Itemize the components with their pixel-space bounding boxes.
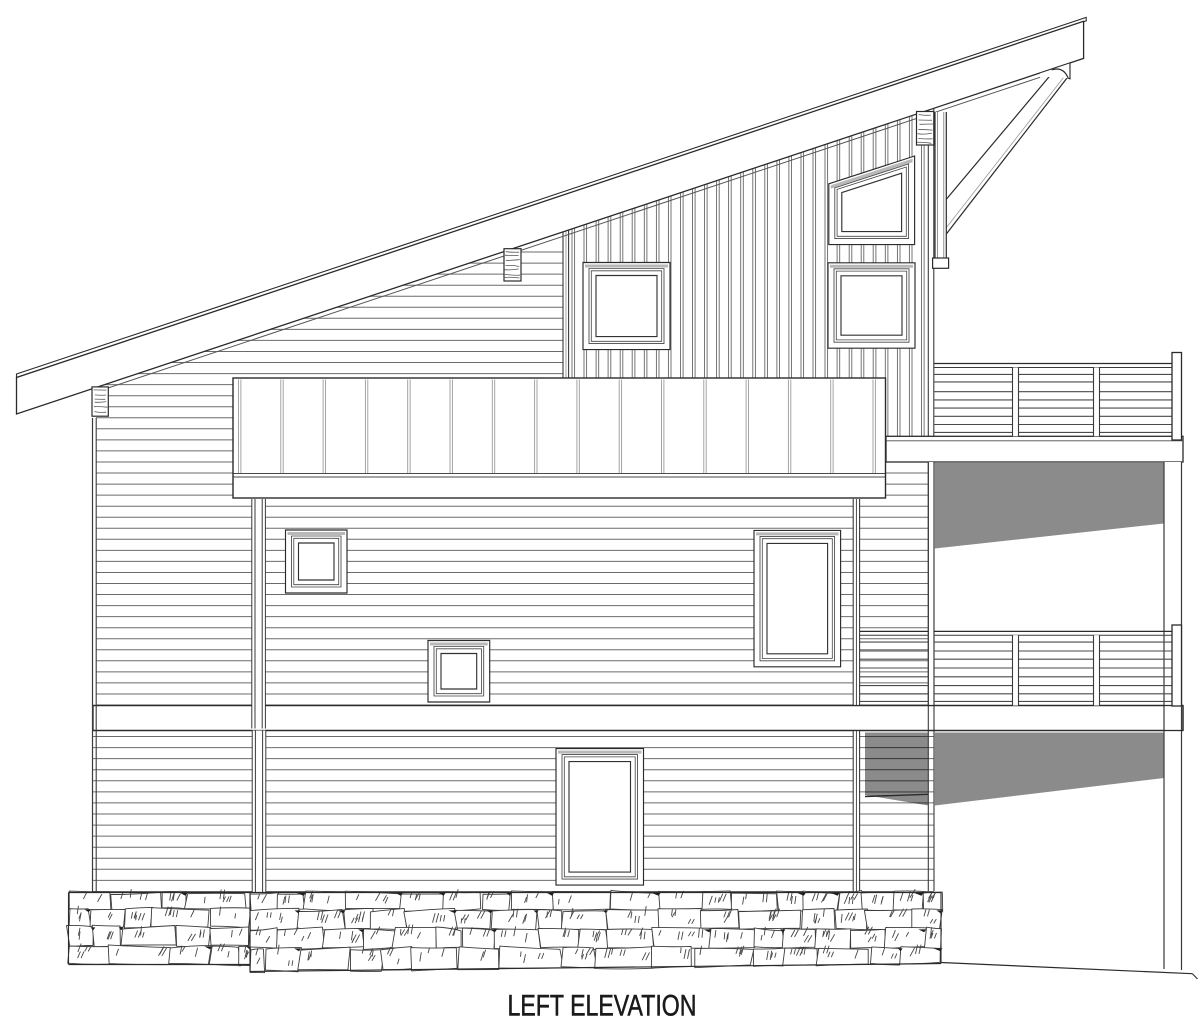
svg-text:LEFT ELEVATION: LEFT ELEVATION [508, 990, 697, 1023]
